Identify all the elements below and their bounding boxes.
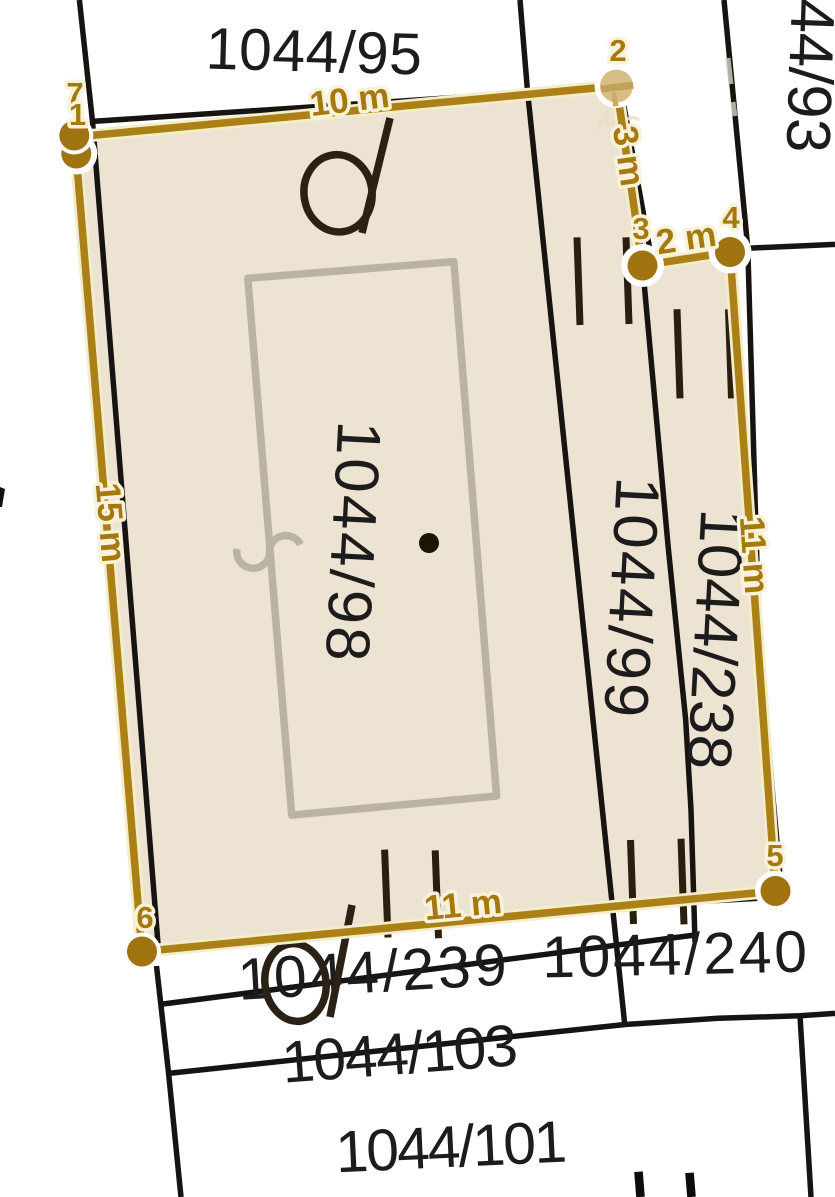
- svg-text:2: 2: [609, 33, 626, 68]
- svg-text:1044/95: 1044/95: [205, 15, 424, 87]
- svg-text:6: 6: [136, 900, 153, 935]
- svg-text:11 m: 11 m: [732, 515, 776, 595]
- svg-text:15 m: 15 m: [88, 481, 133, 564]
- svg-text:4: 4: [722, 200, 740, 235]
- svg-text:3: 3: [632, 211, 649, 246]
- svg-text:1044/98: 1044/98: [312, 419, 394, 665]
- svg-text:3 m: 3 m: [605, 123, 652, 188]
- svg-text:1: 1: [69, 97, 86, 132]
- svg-text:1044/101: 1044/101: [334, 1109, 566, 1186]
- svg-text:11 m: 11 m: [422, 882, 503, 928]
- svg-text:1044/240: 1044/240: [541, 918, 810, 990]
- svg-text:1044/93: 1044/93: [773, 0, 835, 154]
- svg-text:1044/99: 1044/99: [590, 475, 672, 721]
- svg-text:5: 5: [766, 838, 783, 873]
